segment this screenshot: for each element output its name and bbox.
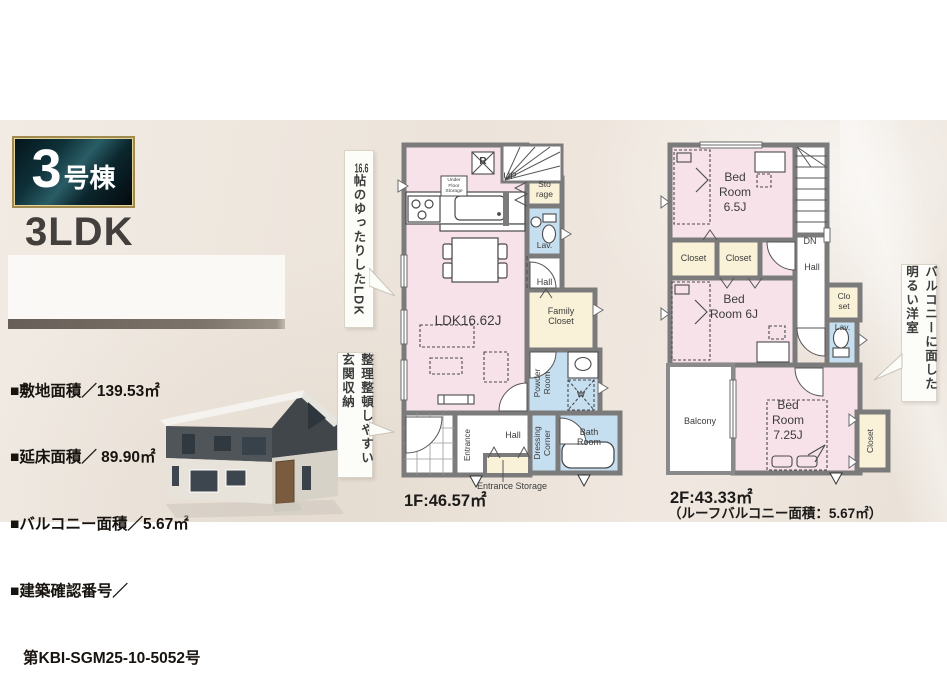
- callout-ldk-pointer: [369, 260, 397, 300]
- tv-board: [438, 395, 474, 404]
- floor1-area-label: 1F:46.57㎡: [404, 487, 487, 511]
- callout-ldk-number: 16.6: [350, 162, 369, 175]
- callout-entrance-pointer: [369, 418, 397, 440]
- room-label-bath-room: Bath Room: [572, 427, 606, 448]
- callout-entrance-text: 整理整頓しやすい玄関収納: [338, 353, 376, 477]
- callout-ldk-text: 帖のゆったりしたLDK: [350, 174, 369, 316]
- room-label-hall-2f: Hall: [797, 262, 827, 272]
- room-label-bedroom-725: Bed Room 7.25J: [763, 398, 813, 443]
- callout-bedroom: バルコニーに面した明るい洋室: [901, 264, 937, 402]
- room-label-closet-d: Closet: [866, 419, 878, 463]
- room-label-up: UP: [500, 172, 520, 183]
- badge-number: 3: [31, 138, 61, 200]
- room-label-closet-b: Closet: [717, 253, 760, 263]
- room-label-bedroom-6: Bed Room 6J: [709, 292, 759, 322]
- roof-balcony-note: （ルーフバルコニー面積：5.67㎡）: [668, 502, 882, 522]
- room-label-closet-c: Clo set: [832, 292, 856, 312]
- room-label-lav-2f: Lav.: [829, 323, 856, 333]
- room-label-entrance: Entrance: [463, 420, 475, 470]
- divider-bar: [8, 319, 285, 329]
- callout-bedroom-pointer: [872, 352, 904, 384]
- room-label-bedroom-65: Bed Room 6.5J: [710, 170, 760, 215]
- room-label-hall-entrance: Hall: [493, 430, 533, 440]
- room-label-refrigerator: R: [473, 156, 493, 168]
- room-label-hall-center: Hall: [531, 277, 558, 287]
- room-label-balcony: Balcony: [670, 416, 730, 426]
- room-label-storage: Sto rage: [531, 180, 558, 200]
- layout-type: 3LDK: [25, 210, 133, 255]
- room-label-under-floor-storage: Under Floor Storage: [442, 178, 466, 195]
- flyer-page: 3 号棟 3LDK ■敷地面積／139.53㎡ ■延床面積／ 89.90㎡ ■バ…: [0, 0, 947, 686]
- callout-entrance: 整理整頓しやすい玄関収納: [337, 352, 373, 478]
- room-label-closet-a: Closet: [670, 253, 717, 263]
- room-label-dn: DN: [800, 236, 820, 246]
- callout-bedroom-text: バルコニーに面した明るい洋室: [902, 265, 940, 401]
- building-number-badge: 3 号棟: [12, 136, 135, 208]
- detail-line: ■建築確認番号／: [10, 581, 200, 603]
- badge-suffix: 号棟: [64, 158, 116, 195]
- house-illustration: [152, 378, 352, 522]
- photo-white-box: [8, 255, 285, 319]
- room-label-family-closet: Family Closet: [541, 306, 581, 327]
- powder-sink: [568, 352, 598, 378]
- room-label-powder-room: Powder Room: [533, 361, 555, 405]
- room-label-washer: W: [571, 389, 591, 399]
- callout-ldk: 16.6帖のゆったりしたLDK: [344, 150, 374, 328]
- detail-line: 第KBI-SGM25-10-5052号: [23, 648, 200, 670]
- dining-table: [443, 238, 507, 282]
- room-label-lav-1f: Lav.: [531, 241, 558, 251]
- room-label-ldk: LDK16.62J: [423, 313, 513, 329]
- room-label-dressing-corner: Dressing Corner: [533, 421, 555, 465]
